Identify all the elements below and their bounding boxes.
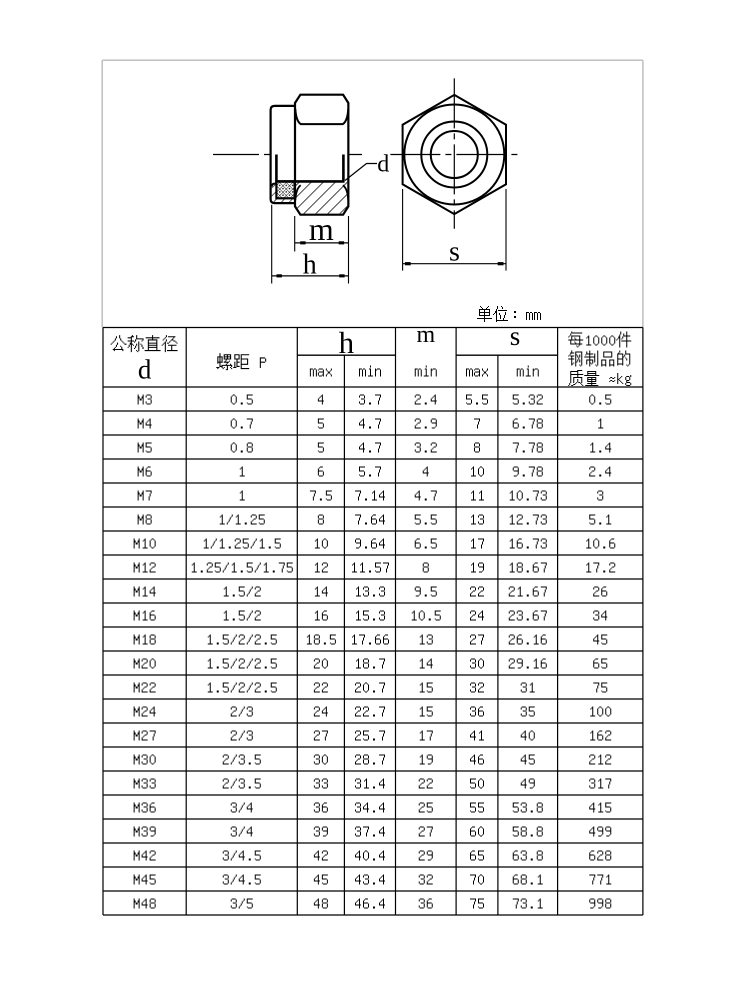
svg-text:26: 26 — [592, 583, 608, 599]
svg-text:M20: M20 — [133, 655, 157, 671]
svg-text:5.5: 5.5 — [414, 511, 438, 527]
svg-text:15: 15 — [418, 679, 434, 695]
svg-text:65: 65 — [469, 847, 485, 863]
svg-text:每1000件: 每1000件 — [568, 332, 632, 348]
svg-text:34.4: 34.4 — [354, 799, 386, 815]
svg-text:5: 5 — [317, 439, 325, 455]
svg-text:s: s — [510, 321, 521, 351]
svg-text:h: h — [303, 250, 317, 281]
svg-text:31.4: 31.4 — [354, 775, 386, 791]
svg-text:max: max — [309, 363, 333, 379]
svg-text:1.4: 1.4 — [588, 439, 612, 455]
svg-text:M3: M3 — [137, 391, 153, 407]
svg-text:22: 22 — [313, 679, 329, 695]
svg-text:24: 24 — [469, 607, 485, 623]
svg-text:min: min — [414, 363, 438, 379]
svg-text:M6: M6 — [137, 463, 153, 479]
svg-text:1.5/2/2.5: 1.5/2/2.5 — [206, 655, 278, 671]
svg-text:18.7: 18.7 — [354, 655, 386, 671]
svg-text:13.3: 13.3 — [354, 583, 386, 599]
svg-text:M33: M33 — [133, 775, 157, 791]
svg-text:s: s — [449, 236, 460, 267]
svg-text:29.16: 29.16 — [508, 655, 548, 671]
svg-text:1: 1 — [238, 487, 246, 503]
svg-text:46.4: 46.4 — [354, 895, 386, 911]
svg-text:M4: M4 — [137, 415, 153, 431]
svg-text:5.7: 5.7 — [358, 463, 382, 479]
svg-text:单位：mm: 单位：mm — [477, 306, 541, 322]
svg-text:49: 49 — [520, 775, 536, 791]
svg-text:2.4: 2.4 — [414, 391, 438, 407]
svg-text:3.7: 3.7 — [358, 391, 382, 407]
svg-text:5: 5 — [317, 415, 325, 431]
svg-text:螺距 P: 螺距 P — [216, 353, 267, 371]
svg-text:d: d — [377, 152, 389, 178]
svg-text:25.7: 25.7 — [354, 727, 386, 743]
svg-text:3/4: 3/4 — [230, 799, 254, 815]
svg-text:17.66: 17.66 — [350, 631, 390, 647]
svg-text:14: 14 — [313, 583, 329, 599]
svg-text:max: max — [465, 363, 489, 379]
svg-text:2.9: 2.9 — [414, 415, 438, 431]
svg-text:8: 8 — [473, 439, 481, 455]
svg-text:13: 13 — [418, 631, 434, 647]
svg-text:13: 13 — [469, 511, 485, 527]
svg-text:998: 998 — [588, 895, 612, 911]
svg-text:19: 19 — [469, 559, 485, 575]
svg-text:3/5: 3/5 — [230, 895, 254, 911]
svg-text:11: 11 — [469, 487, 485, 503]
svg-text:42: 42 — [313, 847, 329, 863]
svg-text:415: 415 — [588, 799, 612, 815]
svg-text:45: 45 — [592, 631, 608, 647]
svg-text:1.5/2: 1.5/2 — [222, 583, 262, 599]
svg-text:26.16: 26.16 — [508, 631, 548, 647]
svg-text:3/4.5: 3/4.5 — [222, 847, 262, 863]
svg-text:65: 65 — [592, 655, 608, 671]
svg-text:1/1.25: 1/1.25 — [218, 511, 266, 527]
svg-text:31: 31 — [520, 679, 536, 695]
svg-text:70: 70 — [469, 871, 485, 887]
svg-text:45: 45 — [520, 751, 536, 767]
svg-text:M10: M10 — [133, 535, 157, 551]
svg-text:30: 30 — [469, 655, 485, 671]
svg-text:771: 771 — [588, 871, 612, 887]
svg-text:24: 24 — [313, 703, 329, 719]
svg-text:min: min — [358, 363, 382, 379]
svg-text:M30: M30 — [133, 751, 157, 767]
svg-text:68.1: 68.1 — [512, 871, 544, 887]
svg-text:5.5: 5.5 — [465, 391, 489, 407]
svg-text:18.67: 18.67 — [508, 559, 548, 575]
svg-text:20: 20 — [313, 655, 329, 671]
svg-text:75: 75 — [592, 679, 608, 695]
svg-text:M24: M24 — [133, 703, 157, 719]
svg-text:60: 60 — [469, 823, 485, 839]
svg-text:M5: M5 — [137, 439, 153, 455]
svg-text:质量 ≈kg: 质量 ≈kg — [568, 370, 632, 386]
svg-text:15: 15 — [418, 703, 434, 719]
svg-text:36: 36 — [418, 895, 434, 911]
svg-text:29: 29 — [418, 847, 434, 863]
svg-text:48: 48 — [313, 895, 329, 911]
svg-text:2.4: 2.4 — [588, 463, 612, 479]
svg-text:2/3.5: 2/3.5 — [222, 775, 262, 791]
svg-text:23.67: 23.67 — [508, 607, 548, 623]
svg-text:75: 75 — [469, 895, 485, 911]
svg-text:19: 19 — [418, 751, 434, 767]
svg-text:0.8: 0.8 — [230, 439, 254, 455]
svg-text:M12: M12 — [133, 559, 157, 575]
svg-text:1.5/2: 1.5/2 — [222, 607, 262, 623]
svg-text:0.7: 0.7 — [230, 415, 254, 431]
svg-text:M48: M48 — [133, 895, 157, 911]
svg-text:10: 10 — [313, 535, 329, 551]
svg-text:1.5/2/2.5: 1.5/2/2.5 — [206, 679, 278, 695]
svg-text:73.1: 73.1 — [512, 895, 544, 911]
svg-text:M27: M27 — [133, 727, 157, 743]
svg-text:37.4: 37.4 — [354, 823, 386, 839]
svg-text:8: 8 — [422, 559, 430, 575]
svg-text:10: 10 — [469, 463, 485, 479]
svg-text:7.78: 7.78 — [512, 439, 544, 455]
svg-text:43.4: 43.4 — [354, 871, 386, 887]
svg-text:18.5: 18.5 — [305, 631, 337, 647]
svg-text:100: 100 — [588, 703, 612, 719]
svg-text:22: 22 — [418, 775, 434, 791]
svg-text:1.25/1.5/1.75: 1.25/1.5/1.75 — [190, 559, 294, 575]
svg-text:M16: M16 — [133, 607, 157, 623]
svg-text:499: 499 — [588, 823, 612, 839]
svg-text:21.67: 21.67 — [508, 583, 548, 599]
svg-text:3: 3 — [596, 487, 604, 503]
svg-text:M14: M14 — [133, 583, 157, 599]
svg-text:40.4: 40.4 — [354, 847, 386, 863]
svg-text:12.73: 12.73 — [508, 511, 548, 527]
svg-text:11.57: 11.57 — [350, 559, 390, 575]
svg-text:55: 55 — [469, 799, 485, 815]
svg-text:9.78: 9.78 — [512, 463, 544, 479]
svg-text:22.7: 22.7 — [354, 703, 386, 719]
svg-text:36: 36 — [469, 703, 485, 719]
svg-text:32: 32 — [418, 871, 434, 887]
svg-text:17: 17 — [418, 727, 434, 743]
svg-text:3/4: 3/4 — [230, 823, 254, 839]
svg-text:36: 36 — [313, 799, 329, 815]
svg-text:16: 16 — [313, 607, 329, 623]
svg-text:30: 30 — [313, 751, 329, 767]
svg-text:34: 34 — [592, 607, 608, 623]
svg-text:27: 27 — [313, 727, 329, 743]
svg-text:2/3: 2/3 — [230, 703, 254, 719]
svg-text:钢制品的: 钢制品的 — [568, 351, 632, 367]
svg-text:M18: M18 — [133, 631, 157, 647]
svg-text:1.5/2/2.5: 1.5/2/2.5 — [206, 631, 278, 647]
svg-text:50: 50 — [469, 775, 485, 791]
svg-text:0.5: 0.5 — [588, 391, 612, 407]
svg-text:M36: M36 — [133, 799, 157, 815]
svg-text:h: h — [339, 325, 355, 360]
svg-text:2/3.5: 2/3.5 — [222, 751, 262, 767]
svg-text:28.7: 28.7 — [354, 751, 386, 767]
svg-text:6.5: 6.5 — [414, 535, 438, 551]
svg-text:8: 8 — [317, 511, 325, 527]
svg-text:5.32: 5.32 — [512, 391, 544, 407]
svg-text:32: 32 — [469, 679, 485, 695]
svg-text:25: 25 — [418, 799, 434, 815]
svg-text:5.1: 5.1 — [588, 511, 612, 527]
svg-text:7.64: 7.64 — [354, 511, 386, 527]
svg-text:41: 41 — [469, 727, 485, 743]
svg-text:10.6: 10.6 — [584, 535, 616, 551]
svg-text:33: 33 — [313, 775, 329, 791]
svg-text:40: 40 — [520, 727, 536, 743]
svg-text:M8: M8 — [137, 511, 153, 527]
svg-text:9.64: 9.64 — [354, 535, 386, 551]
svg-text:1: 1 — [596, 415, 604, 431]
svg-text:212: 212 — [588, 751, 612, 767]
svg-text:1: 1 — [238, 463, 246, 479]
svg-text:M7: M7 — [137, 487, 153, 503]
svg-text:m: m — [416, 322, 435, 348]
svg-text:4.7: 4.7 — [358, 439, 382, 455]
svg-text:公称直径: 公称直径 — [111, 335, 179, 353]
svg-text:27: 27 — [418, 823, 434, 839]
svg-text:7.5: 7.5 — [309, 487, 333, 503]
svg-text:M42: M42 — [133, 847, 157, 863]
svg-text:4.7: 4.7 — [414, 487, 438, 503]
svg-text:16.73: 16.73 — [508, 535, 548, 551]
svg-text:4: 4 — [317, 391, 325, 407]
svg-text:m: m — [309, 211, 334, 247]
svg-text:M22: M22 — [133, 679, 157, 695]
svg-text:22: 22 — [469, 583, 485, 599]
svg-text:14: 14 — [418, 655, 434, 671]
svg-text:15.3: 15.3 — [354, 607, 386, 623]
svg-text:10.5: 10.5 — [410, 607, 442, 623]
svg-text:0.5: 0.5 — [230, 391, 254, 407]
svg-text:6: 6 — [317, 463, 325, 479]
svg-text:20.7: 20.7 — [354, 679, 386, 695]
svg-text:162: 162 — [588, 727, 612, 743]
svg-text:317: 317 — [588, 775, 612, 791]
svg-text:17: 17 — [469, 535, 485, 551]
svg-text:min: min — [516, 363, 540, 379]
svg-text:45: 45 — [313, 871, 329, 887]
svg-text:M45: M45 — [133, 871, 157, 887]
svg-text:4.7: 4.7 — [358, 415, 382, 431]
svg-text:39: 39 — [313, 823, 329, 839]
svg-text:35: 35 — [520, 703, 536, 719]
svg-text:27: 27 — [469, 631, 485, 647]
svg-text:7.14: 7.14 — [354, 487, 386, 503]
svg-text:3/4.5: 3/4.5 — [222, 871, 262, 887]
svg-text:53.8: 53.8 — [512, 799, 544, 815]
svg-text:7: 7 — [473, 415, 481, 431]
svg-text:12: 12 — [313, 559, 329, 575]
svg-text:58.8: 58.8 — [512, 823, 544, 839]
svg-text:4: 4 — [422, 463, 430, 479]
svg-text:9.5: 9.5 — [414, 583, 438, 599]
svg-text:2/3: 2/3 — [230, 727, 254, 743]
svg-text:628: 628 — [588, 847, 612, 863]
svg-text:6.78: 6.78 — [512, 415, 544, 431]
svg-text:63.8: 63.8 — [512, 847, 544, 863]
svg-text:3.2: 3.2 — [414, 439, 438, 455]
svg-text:46: 46 — [469, 751, 485, 767]
svg-text:M39: M39 — [133, 823, 157, 839]
svg-text:17.2: 17.2 — [584, 559, 616, 575]
svg-text:1/1.25/1.5: 1/1.25/1.5 — [202, 535, 282, 551]
svg-text:10.73: 10.73 — [508, 487, 548, 503]
svg-text:d: d — [138, 355, 152, 385]
